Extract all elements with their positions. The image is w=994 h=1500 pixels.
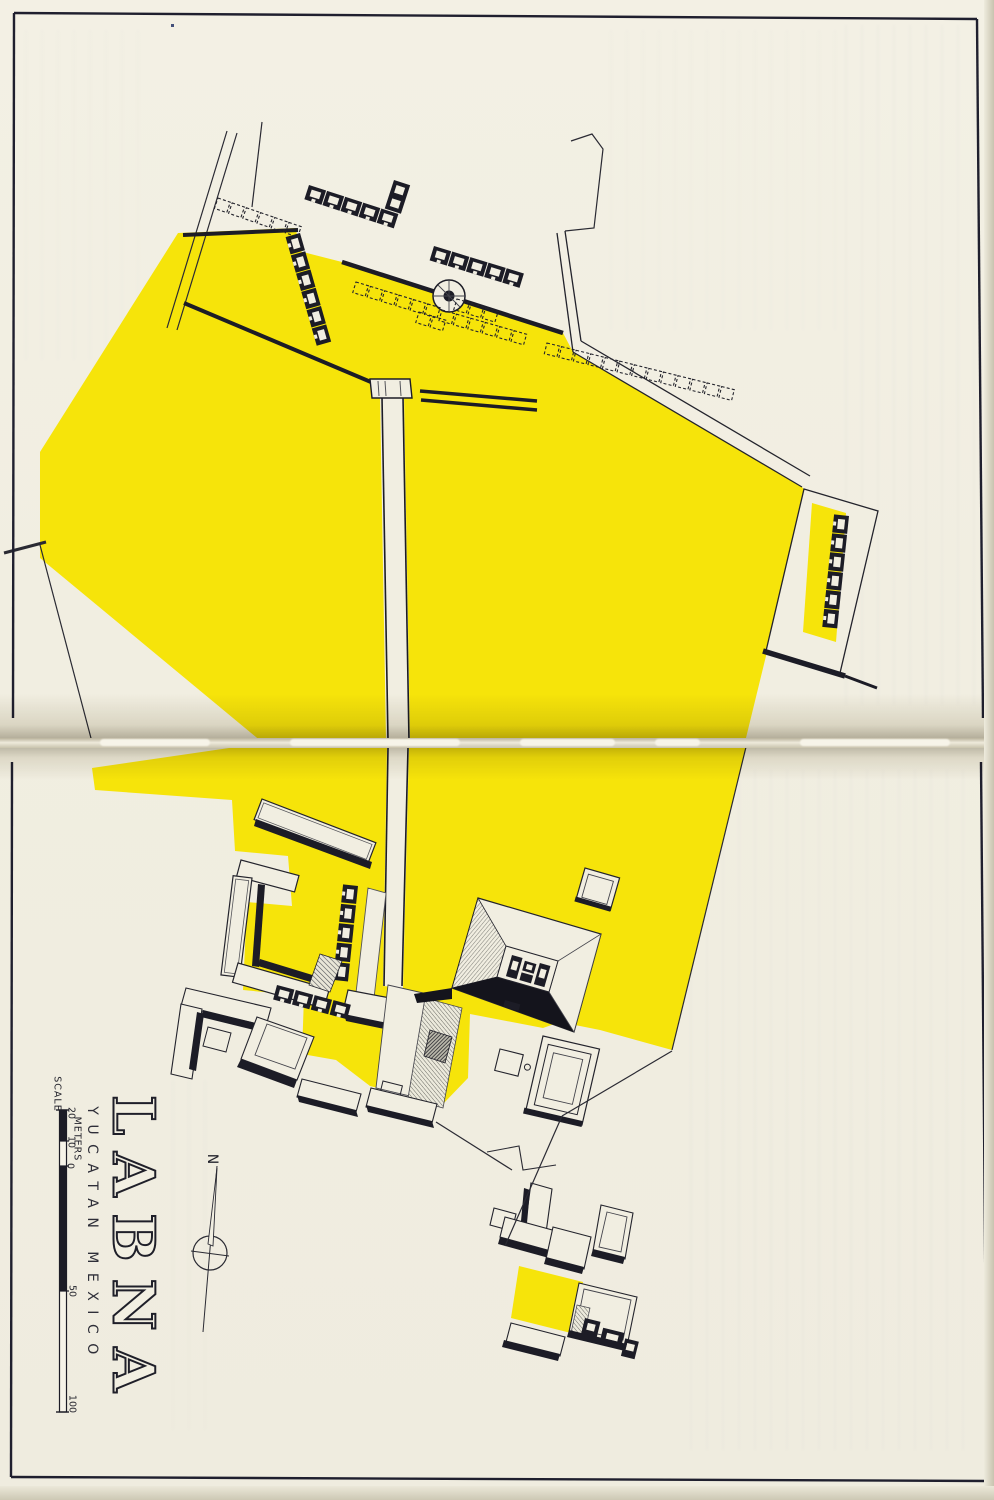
north-plaza bbox=[40, 228, 806, 742]
scale-bar bbox=[56, 1110, 69, 1412]
fold-stitch-gap bbox=[290, 739, 460, 746]
north-arrow bbox=[191, 1166, 229, 1332]
scale-tick-100: 100 bbox=[67, 1395, 78, 1413]
sacbe-head-platform bbox=[370, 379, 412, 398]
page-edge-bottom bbox=[0, 1486, 994, 1500]
site-subtitle: YUCATAN MEXICO bbox=[84, 1106, 100, 1363]
fold-stitch-gap bbox=[100, 739, 210, 746]
page-fold-shadow-bottom bbox=[0, 748, 994, 780]
page-edge-right bbox=[984, 0, 994, 1500]
site-title: LABNA bbox=[100, 1095, 167, 1409]
fold-stitch-gap bbox=[520, 739, 615, 746]
book-spread-page: LABNA YUCATAN MEXICO N SCALE METERS 20 1… bbox=[0, 0, 994, 1500]
sunken-court-platform bbox=[523, 1036, 599, 1127]
fold-stitch-gap bbox=[800, 739, 950, 746]
palace-annex-building bbox=[385, 180, 410, 214]
scale-tick-0: 0 bbox=[65, 1163, 76, 1169]
altar-platform bbox=[495, 1049, 533, 1079]
scale-tick-20: 20 bbox=[66, 1107, 77, 1119]
temple-of-columns bbox=[567, 1283, 641, 1359]
scale-tick-10: 10 bbox=[66, 1136, 77, 1148]
page-fold-shadow-top bbox=[0, 694, 994, 738]
palace-range-building bbox=[304, 185, 398, 228]
scale-label: SCALE bbox=[52, 1076, 63, 1111]
fold-stitch-gap bbox=[655, 739, 700, 746]
north-arrow-label: N bbox=[204, 1154, 220, 1164]
scale-tick-50: 50 bbox=[67, 1285, 78, 1297]
